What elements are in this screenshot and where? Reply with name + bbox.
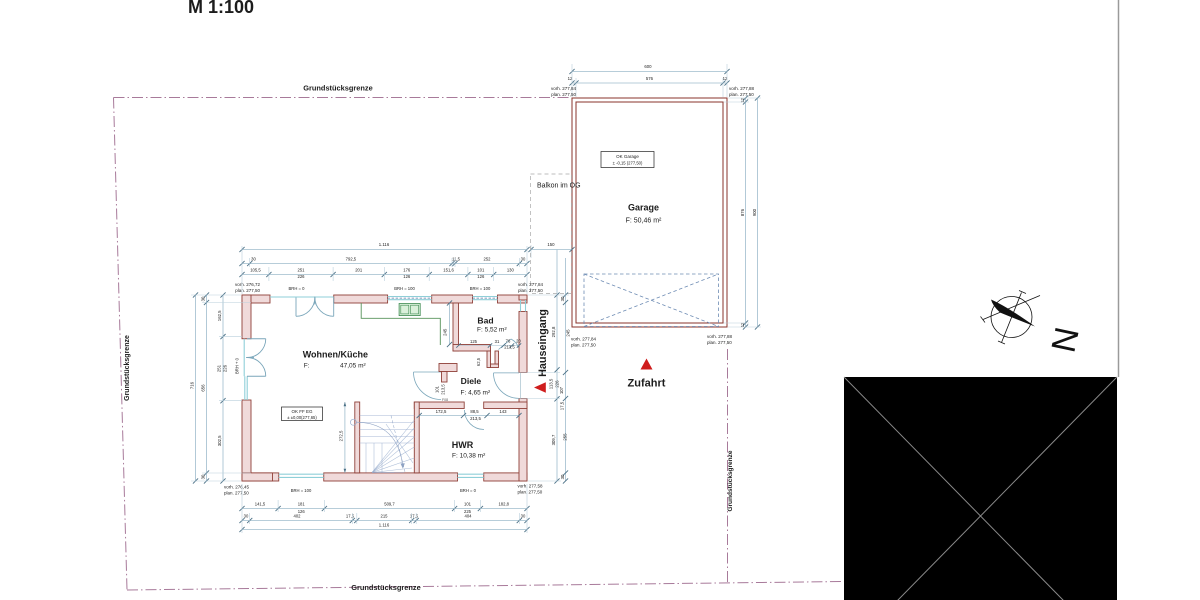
svg-text:176: 176 bbox=[403, 268, 411, 273]
svg-text:BRH = 100: BRH = 100 bbox=[470, 286, 491, 291]
svg-text:Grundstücksgrenze: Grundstücksgrenze bbox=[303, 84, 372, 93]
svg-text:141,5: 141,5 bbox=[255, 502, 266, 507]
svg-text:226: 226 bbox=[298, 274, 306, 279]
svg-text:302,5: 302,5 bbox=[217, 435, 222, 446]
svg-text:Bad: Bad bbox=[477, 316, 493, 326]
svg-text:vorh. 277,84: vorh. 277,84 bbox=[571, 337, 597, 342]
svg-text:213,5: 213,5 bbox=[470, 416, 481, 421]
svg-text:251: 251 bbox=[217, 364, 222, 372]
svg-text:126: 126 bbox=[403, 274, 411, 279]
svg-text:Wohnen/Küche: Wohnen/Küche bbox=[303, 350, 368, 360]
svg-text:M 1:100: M 1:100 bbox=[188, 0, 254, 17]
svg-text:182,8: 182,8 bbox=[498, 502, 509, 507]
svg-text:162,5: 162,5 bbox=[217, 310, 222, 321]
svg-text:plan. 277,50: plan. 277,50 bbox=[729, 92, 754, 97]
svg-text:31: 31 bbox=[495, 339, 500, 344]
svg-text:309,7: 309,7 bbox=[551, 434, 556, 445]
svg-text:76: 76 bbox=[506, 339, 511, 344]
svg-text:17,5: 17,5 bbox=[560, 401, 565, 410]
svg-text:213,5: 213,5 bbox=[441, 384, 446, 395]
svg-text:600: 600 bbox=[644, 64, 652, 69]
svg-text:vorh. 277,84: vorh. 277,84 bbox=[518, 282, 544, 287]
svg-text:105,5: 105,5 bbox=[250, 268, 261, 273]
svg-text:20: 20 bbox=[516, 339, 521, 344]
svg-text:OK Garage: OK Garage bbox=[616, 154, 639, 159]
svg-text:213,5: 213,5 bbox=[504, 345, 515, 350]
svg-text:30: 30 bbox=[521, 514, 526, 519]
svg-text:576: 576 bbox=[646, 76, 654, 81]
svg-text:150: 150 bbox=[547, 242, 555, 247]
svg-text:plan. 277,50: plan. 277,50 bbox=[571, 342, 596, 347]
svg-text:30: 30 bbox=[521, 257, 526, 262]
svg-text:126: 126 bbox=[477, 274, 485, 279]
svg-text:245: 245 bbox=[566, 329, 571, 337]
svg-text:F: 5,52 m²: F: 5,52 m² bbox=[477, 326, 507, 333]
svg-text:plan. 277,50: plan. 277,50 bbox=[707, 340, 732, 345]
svg-text:172,5: 172,5 bbox=[436, 409, 447, 414]
svg-text:1.116: 1.116 bbox=[379, 523, 390, 528]
svg-text:vorh. 277,84: vorh. 277,84 bbox=[551, 86, 577, 91]
svg-text:30: 30 bbox=[244, 514, 249, 519]
svg-text:Grundstücksgrenze: Grundstücksgrenze bbox=[351, 583, 420, 592]
svg-text:F:: F: bbox=[304, 363, 310, 370]
svg-text:Garage: Garage bbox=[628, 203, 659, 213]
svg-text:F08: F08 bbox=[442, 398, 448, 402]
svg-text:vorh. 277,58: vorh. 277,58 bbox=[518, 484, 544, 489]
svg-text:101: 101 bbox=[464, 502, 472, 507]
svg-text:plan. 277,50: plan. 277,50 bbox=[551, 92, 576, 97]
svg-text:BRH = 100: BRH = 100 bbox=[394, 286, 415, 291]
svg-text:245: 245 bbox=[443, 328, 448, 336]
svg-text:F: 10,38 m²: F: 10,38 m² bbox=[452, 453, 486, 460]
svg-text:plan. 277,50: plan. 277,50 bbox=[518, 288, 543, 293]
svg-text:215: 215 bbox=[381, 514, 389, 519]
svg-text:251: 251 bbox=[298, 268, 306, 273]
svg-text:BRH + 0: BRH + 0 bbox=[235, 357, 240, 374]
svg-text:226: 226 bbox=[223, 364, 228, 372]
svg-text:402: 402 bbox=[294, 514, 302, 519]
svg-text:30: 30 bbox=[560, 474, 565, 479]
svg-text:201: 201 bbox=[355, 268, 363, 273]
svg-text:143: 143 bbox=[499, 409, 507, 414]
svg-text:113,5: 113,5 bbox=[549, 378, 554, 389]
svg-text:226: 226 bbox=[555, 380, 560, 388]
svg-text:30: 30 bbox=[560, 296, 565, 301]
svg-text:876: 876 bbox=[740, 208, 745, 216]
svg-text:vorh. 276,72: vorh. 276,72 bbox=[235, 282, 261, 287]
svg-text:101: 101 bbox=[435, 385, 440, 393]
svg-text:11,5: 11,5 bbox=[452, 257, 461, 262]
svg-text:Hauseingang: Hauseingang bbox=[537, 309, 549, 377]
svg-text:vorh. 276,45: vorh. 276,45 bbox=[224, 485, 250, 490]
svg-text:Diele: Diele bbox=[461, 376, 482, 386]
svg-text:plan. 277,50: plan. 277,50 bbox=[235, 288, 260, 293]
svg-text:plan. 277,50: plan. 277,50 bbox=[518, 489, 543, 494]
svg-text:HWR: HWR bbox=[452, 440, 474, 450]
svg-text:656: 656 bbox=[201, 384, 206, 392]
svg-text:plan. 277,50: plan. 277,50 bbox=[224, 490, 249, 495]
svg-text:17,5: 17,5 bbox=[346, 514, 355, 519]
svg-text:Grundstücksgrenze: Grundstücksgrenze bbox=[124, 335, 131, 401]
svg-text:107: 107 bbox=[559, 386, 564, 394]
svg-text:792,5: 792,5 bbox=[346, 257, 357, 262]
svg-text:BRH = 0: BRH = 0 bbox=[289, 286, 306, 291]
svg-text:vorh. 277,88: vorh. 277,88 bbox=[729, 86, 755, 91]
svg-text:vorh. 277,88: vorh. 277,88 bbox=[707, 334, 733, 339]
svg-text:272,5: 272,5 bbox=[339, 430, 344, 441]
svg-text:151,6: 151,6 bbox=[443, 268, 454, 273]
svg-text:292,8: 292,8 bbox=[551, 326, 556, 337]
svg-text:± -0,15 (277,50): ± -0,15 (277,50) bbox=[613, 161, 643, 166]
svg-text:130: 130 bbox=[507, 268, 515, 273]
svg-text:255: 255 bbox=[563, 433, 568, 441]
svg-text:404: 404 bbox=[465, 514, 473, 519]
svg-text:1.116: 1.116 bbox=[379, 242, 390, 247]
svg-text:Zufahrt: Zufahrt bbox=[628, 378, 666, 390]
svg-text:F: 50,46 m²: F: 50,46 m² bbox=[626, 218, 662, 225]
svg-text:BRH = 100: BRH = 100 bbox=[291, 488, 312, 493]
svg-text:47,05 m²: 47,05 m² bbox=[340, 363, 366, 370]
svg-text:181: 181 bbox=[298, 502, 306, 507]
svg-text:30: 30 bbox=[201, 474, 206, 479]
svg-text:30: 30 bbox=[201, 296, 206, 301]
svg-text:F: 4,65 m²: F: 4,65 m² bbox=[461, 390, 491, 397]
svg-text:17,5: 17,5 bbox=[410, 514, 419, 519]
svg-text:BRH = 0: BRH = 0 bbox=[460, 488, 477, 493]
svg-text:125: 125 bbox=[470, 339, 478, 344]
svg-text:88,5: 88,5 bbox=[470, 409, 479, 414]
svg-text:Grundstücksgrenze: Grundstücksgrenze bbox=[727, 450, 734, 511]
svg-text:Balkon im OG: Balkon im OG bbox=[537, 183, 581, 190]
svg-text:OK FF EG: OK FF EG bbox=[291, 409, 313, 414]
svg-text:252: 252 bbox=[484, 257, 492, 262]
svg-text:716: 716 bbox=[190, 381, 195, 389]
svg-text:30: 30 bbox=[251, 257, 256, 262]
svg-text:62,5: 62,5 bbox=[476, 357, 481, 366]
svg-text:± ±0,00(277,65): ± ±0,00(277,65) bbox=[287, 415, 317, 420]
svg-text:509,7: 509,7 bbox=[384, 502, 395, 507]
svg-text:101: 101 bbox=[477, 268, 485, 273]
svg-text:900: 900 bbox=[752, 208, 757, 216]
